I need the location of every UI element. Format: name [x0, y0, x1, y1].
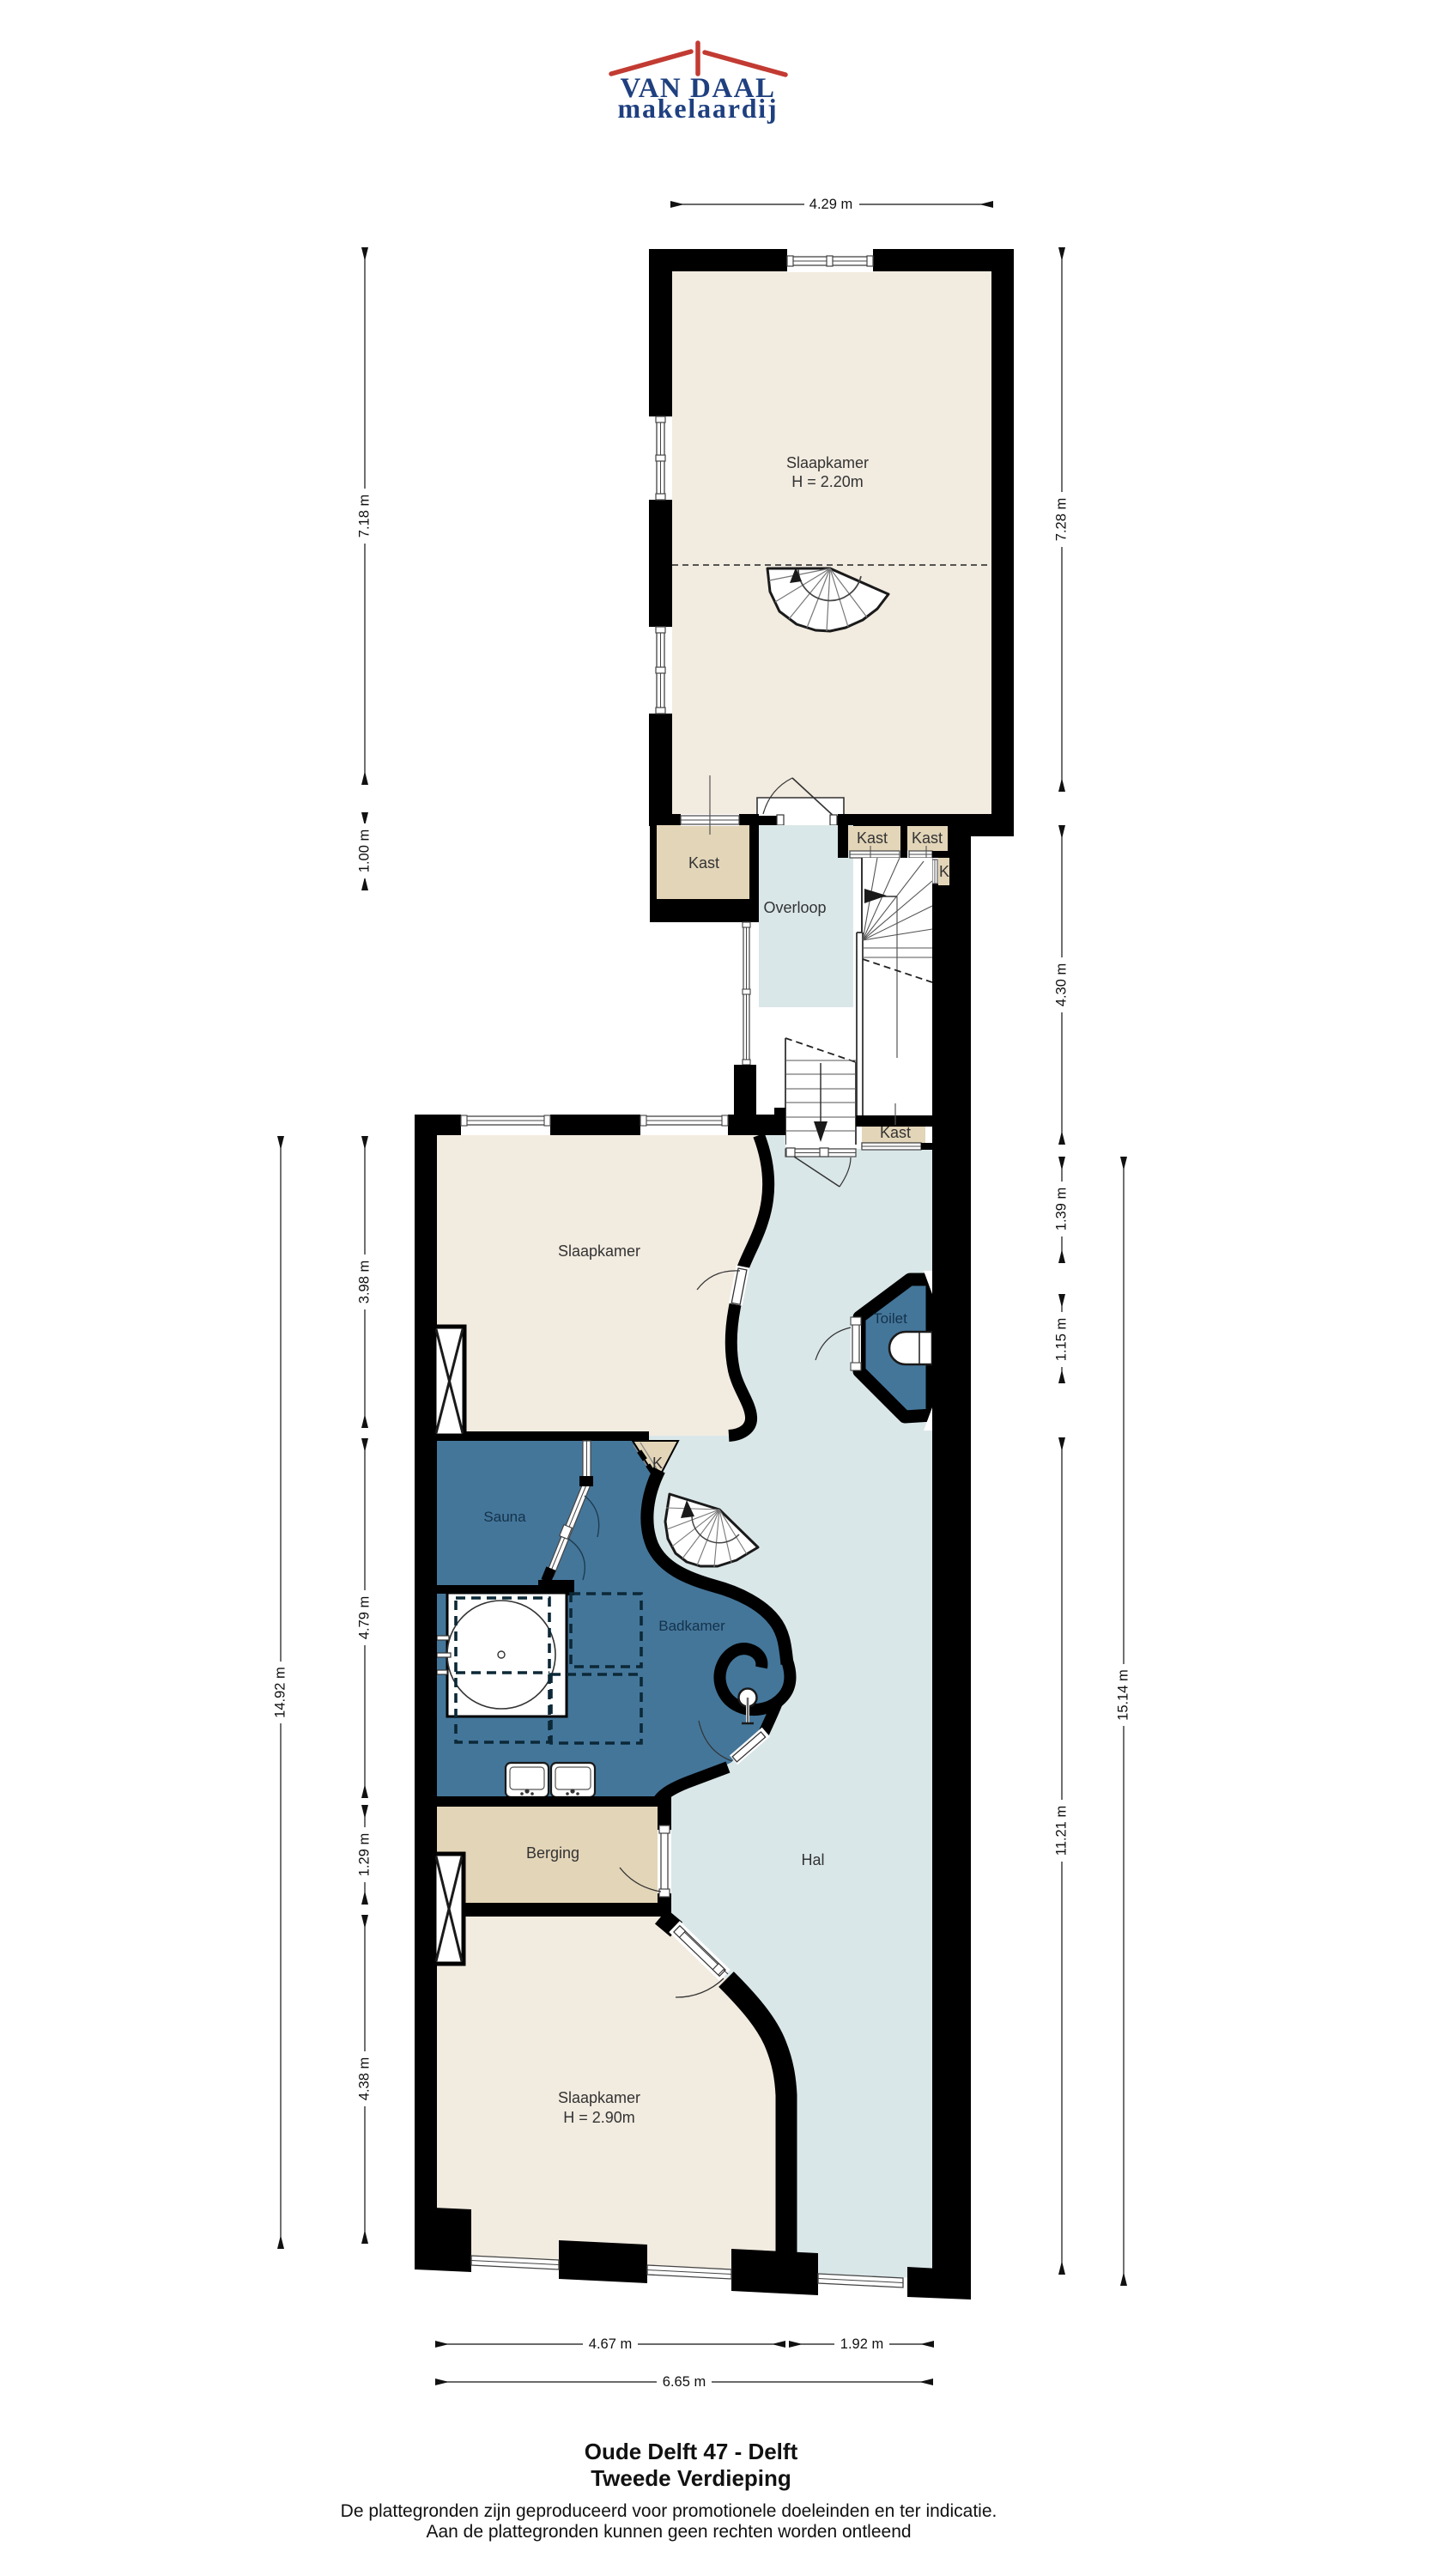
svg-text:14.92 m: 14.92 m: [272, 1667, 288, 1718]
svg-text:Kast: Kast: [912, 829, 943, 847]
svg-text:11.21 m: 11.21 m: [1053, 1806, 1069, 1856]
svg-text:6.65 m: 6.65 m: [663, 2374, 706, 2390]
svg-text:1.39 m: 1.39 m: [1053, 1188, 1069, 1230]
svg-text:Badkamer: Badkamer: [658, 1618, 725, 1634]
svg-text:1.15 m: 1.15 m: [1053, 1318, 1069, 1361]
svg-text:Hal: Hal: [801, 1851, 824, 1868]
svg-text:4.67 m: 4.67 m: [589, 2336, 632, 2352]
svg-text:Oude Delft 47 - Delft: Oude Delft 47 - Delft: [585, 2439, 798, 2464]
svg-text:4.79 m: 4.79 m: [356, 1596, 372, 1639]
svg-text:Slaapkamer: Slaapkamer: [558, 2089, 640, 2106]
svg-text:De plattegronden zijn geproduc: De plattegronden zijn geproduceerd voor …: [341, 2501, 997, 2521]
svg-text:Berging: Berging: [526, 1844, 579, 1862]
svg-text:1.00 m: 1.00 m: [356, 829, 372, 872]
svg-text:1.92 m: 1.92 m: [840, 2336, 883, 2352]
svg-text:1.29 m: 1.29 m: [356, 1833, 372, 1876]
svg-text:Tweede Verdieping: Tweede Verdieping: [591, 2465, 791, 2491]
svg-text:K: K: [939, 863, 949, 880]
svg-text:Kast: Kast: [688, 854, 719, 872]
svg-text:Slaapkamer: Slaapkamer: [558, 1242, 640, 1260]
svg-text:Aan de plattegronden kunnen ge: Aan de plattegronden kunnen geen rechten…: [426, 2522, 911, 2542]
svg-text:Kast: Kast: [857, 829, 888, 847]
svg-text:Sauna: Sauna: [483, 1509, 526, 1525]
svg-text:4.38 m: 4.38 m: [356, 2057, 372, 2100]
svg-text:H = 2.90m: H = 2.90m: [563, 2109, 635, 2126]
svg-text:7.18 m: 7.18 m: [356, 495, 372, 538]
svg-text:7.28 m: 7.28 m: [1053, 498, 1069, 541]
svg-text:4.30 m: 4.30 m: [1053, 963, 1069, 1006]
svg-text:Toilet: Toilet: [873, 1310, 907, 1327]
svg-text:3.98 m: 3.98 m: [356, 1261, 372, 1303]
svg-text:Overloop: Overloop: [763, 899, 826, 916]
svg-text:15.14 m: 15.14 m: [1115, 1669, 1131, 1721]
svg-text:makelaardij: makelaardij: [618, 93, 779, 124]
svg-text:H = 2.20m: H = 2.20m: [791, 473, 864, 490]
svg-text:Kast: Kast: [880, 1124, 911, 1141]
svg-text:4.29 m: 4.29 m: [809, 197, 852, 212]
svg-text:Slaapkamer: Slaapkamer: [786, 454, 869, 471]
